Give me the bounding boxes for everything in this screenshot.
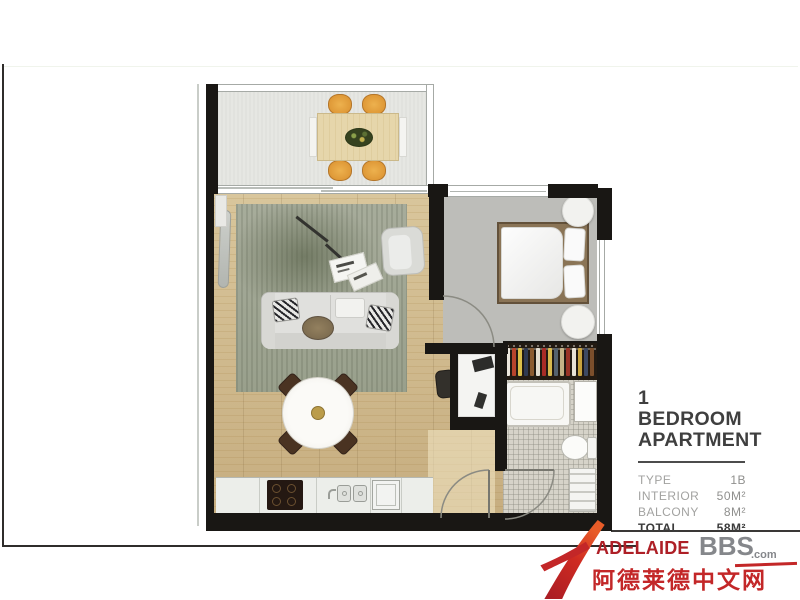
- spec-label: INTERIOR: [638, 488, 699, 504]
- brand-chinese-tagline: 阿德莱德中文网: [592, 561, 767, 595]
- bedroom-door-arc: [443, 296, 494, 347]
- brand-name-adelaide: Adelaide: [596, 538, 690, 559]
- spec-row-type: TYPE 1B: [638, 472, 746, 488]
- spec-label: TYPE: [638, 472, 671, 488]
- watermark-logo: Adelaide BBS .com 阿德莱德中文网: [538, 514, 800, 600]
- apartment-title-line1: 1 BEDROOM: [638, 388, 746, 430]
- floorplan-page: 1 BEDROOM APARTMENT TYPE 1B INTERIOR 50M…: [0, 0, 800, 600]
- spec-value: 1B: [730, 472, 746, 488]
- entry-door-arc: [441, 470, 489, 518]
- spec-value: 50M²: [717, 488, 746, 504]
- spec-row-interior: INTERIOR 50M²: [638, 488, 746, 504]
- brand-tld: .com: [751, 549, 777, 561]
- apartment-title-line2: APARTMENT: [638, 430, 746, 451]
- bathroom-door-arc: [505, 470, 554, 519]
- divider: [638, 461, 745, 463]
- brand-name-bbs: BBS: [699, 531, 754, 562]
